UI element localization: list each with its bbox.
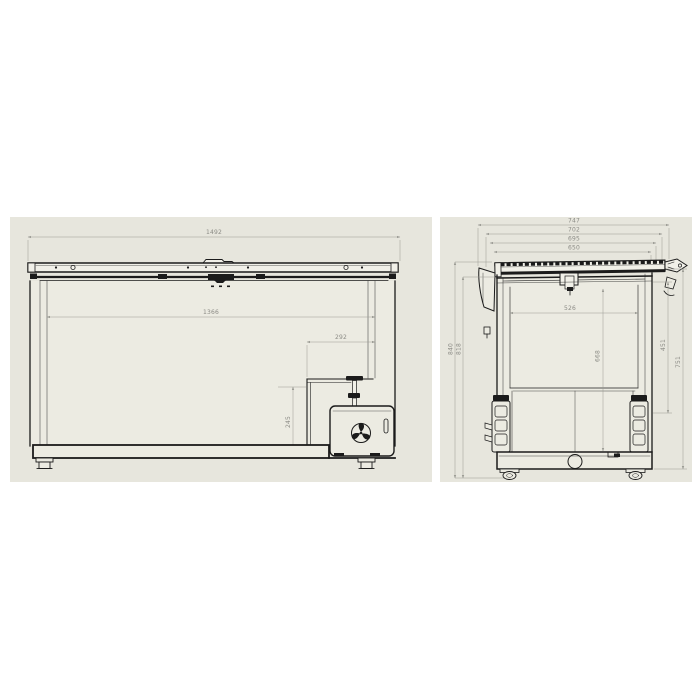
dim-upper-body-height-label: 451 bbox=[660, 339, 667, 351]
dim-height-to-lid-label: 818 bbox=[456, 343, 463, 355]
rail-hook bbox=[485, 423, 492, 430]
lid-end-cap-left bbox=[28, 263, 35, 272]
dim-inner-depth-label: 526 bbox=[564, 305, 576, 312]
seal-bracket-left bbox=[30, 274, 37, 280]
drawing-canvas: 1492 bbox=[0, 0, 700, 700]
seal-bracket-right bbox=[389, 274, 396, 280]
lid-end-cap-right bbox=[391, 263, 398, 272]
front-trim bbox=[479, 268, 495, 338]
bumper-rail-left bbox=[485, 395, 510, 452]
dim-lid-depth-label: 702 bbox=[568, 227, 580, 234]
compressor-compartment bbox=[330, 406, 394, 456]
dim-upper-body-height: 451 bbox=[653, 282, 672, 413]
dim-inner-height-label: 668 bbox=[595, 350, 602, 362]
dim-inner-width-label: 1366 bbox=[203, 309, 219, 316]
bumper-rail-right bbox=[630, 395, 648, 452]
dim-overall-height-label: 840 bbox=[448, 343, 455, 355]
side-knob bbox=[484, 327, 490, 334]
lid-screw-dot bbox=[55, 266, 57, 268]
foot-left bbox=[36, 458, 53, 469]
dim-opening-depth: 650 bbox=[494, 245, 651, 262]
side-view-panel: 747 702 695 650 bbox=[440, 217, 692, 482]
lid-front-cap bbox=[495, 263, 501, 277]
dim-opening-depth-label: 650 bbox=[568, 245, 580, 252]
lid-side bbox=[495, 260, 665, 277]
dim-overall-width-label: 1492 bbox=[206, 229, 222, 236]
dim-step-height-label: 245 bbox=[285, 416, 292, 428]
front-view-drawing: 1492 bbox=[10, 217, 432, 482]
foot-right bbox=[358, 458, 375, 469]
hinge-bracket bbox=[665, 277, 676, 289]
rail-hook bbox=[485, 435, 492, 442]
dim-overall-depth-label: 747 bbox=[568, 218, 580, 225]
dim-overall-width: 1492 bbox=[28, 229, 400, 261]
front-view-panel: 1492 bbox=[10, 217, 432, 482]
hinge-icon bbox=[664, 259, 687, 296]
caster-right bbox=[626, 469, 645, 480]
dim-top-depth-label: 695 bbox=[568, 236, 580, 243]
dim-body-height-label: 751 bbox=[675, 356, 682, 368]
side-view-drawing: 747 702 695 650 bbox=[440, 217, 692, 482]
side-base bbox=[497, 452, 652, 469]
dim-body-height: 751 bbox=[654, 269, 687, 469]
lid bbox=[28, 260, 398, 273]
side-body-face bbox=[497, 277, 652, 452]
dim-step-width-label: 292 bbox=[335, 334, 347, 341]
